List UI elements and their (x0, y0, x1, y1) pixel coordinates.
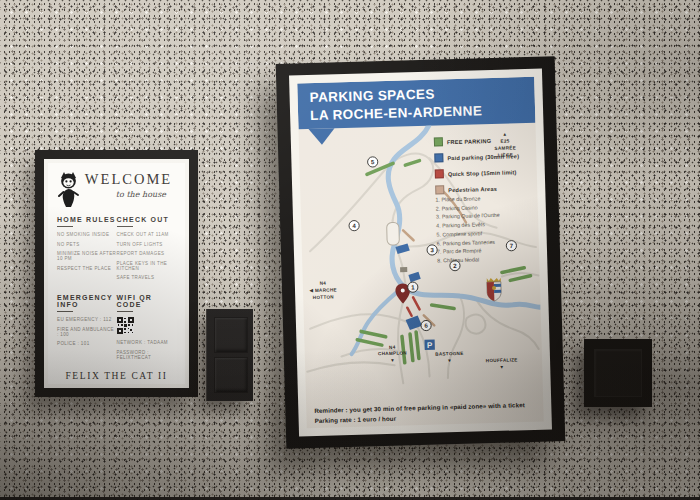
reminder-text: Reminder : you get 30 min of free parkin… (314, 400, 540, 425)
direction-label-marche-hotton: N4 ◀ MARCHE HOTTON (305, 281, 341, 303)
check-out-item: PLACE KEYS IN THE KITCHEN (117, 261, 177, 271)
p-symbol: P (427, 341, 433, 350)
info-columns: EMERGENCY INFO EU EMERGENCY : 112 FIRE A… (57, 294, 176, 364)
welcome-sign-paper: WELCOME to the house HOME RULES NO SMOKI… (48, 163, 185, 384)
check-out-item: SAFE TRAVELS (117, 275, 177, 280)
home-rule-item: NO SMOKING INSIDE (57, 232, 117, 237)
wifi-network: NETWORK : TADAAM (117, 340, 177, 345)
welcome-title: WELCOME (81, 171, 176, 188)
divider (57, 226, 73, 227)
home-rules-heading: HOME RULES (57, 216, 117, 223)
felix-the-cat-icon (57, 172, 81, 212)
wifi-heading: WIFI QR CODE (117, 294, 177, 308)
divider (117, 226, 133, 227)
poster-margin: PARKING SPACES LA ROCHE-EN-ARDENNE (289, 69, 552, 437)
check-out-item: TURN OFF LIGHTS (117, 242, 177, 247)
legend-swatch-green (434, 137, 443, 146)
check-out-item: CHECK OUT AT 11AM (117, 232, 177, 237)
banner-notch (309, 128, 335, 145)
locations-list: 1. Place du Bronze 2. Parking Casino 3. … (435, 193, 534, 266)
property-name: FELIX THE CAT II (57, 371, 176, 381)
switch-plate (594, 349, 642, 397)
bridge-shape (387, 222, 400, 245)
home-rules-section: HOME RULES NO SMOKING INSIDE NO PETS MIN… (57, 216, 117, 285)
legend-swatch-red (435, 169, 444, 178)
legend-item-quick-stop: Quick Stop (15min limit) (435, 167, 532, 179)
parking-p-box: P (424, 340, 434, 350)
emergency-item: EU EMERGENCY : 112 (57, 317, 117, 322)
welcome-header: WELCOME to the house (57, 171, 176, 207)
frame-mat: WELCOME to the house HOME RULES NO SMOKI… (44, 159, 189, 388)
quick-stop-segments (407, 297, 420, 316)
direction-label-champlon: N4 CHAMPLON ▼ (373, 344, 411, 366)
legend-label: FREE PARKING (447, 137, 491, 144)
divider (117, 311, 133, 312)
light-switch-right (584, 339, 652, 407)
home-rule-item: MINIMIZE NOISE AFTER 10 PM (57, 251, 117, 261)
home-rule-item: RESPECT THE PLACE (57, 266, 117, 271)
legend-swatch-blue (434, 153, 443, 162)
emergency-info-section: EMERGENCY INFO EU EMERGENCY : 112 FIRE A… (57, 294, 117, 364)
poster-print-area: PARKING SPACES LA ROCHE-EN-ARDENNE (297, 77, 544, 428)
building-block (400, 267, 407, 272)
check-out-heading: CHECK OUT (117, 216, 177, 223)
direction-label-houffalize: HOUFFALIZE ▼ (480, 357, 523, 372)
town-crest-icon (484, 276, 505, 307)
direction-label-bastogne: BASTOGNE ▼ (430, 350, 468, 365)
parking-map-frame: PARKING SPACES LA ROCHE-EN-ARDENNE (276, 56, 566, 449)
legend-swatch-tan (435, 185, 444, 194)
photo-of-wall: WELCOME to the house HOME RULES NO SMOKI… (0, 0, 700, 500)
legend-item-free-parking: FREE PARKING (434, 135, 531, 147)
wifi-qr-code-icon (117, 317, 177, 338)
wifi-section: WIFI QR CODE (117, 294, 177, 364)
check-out-item: REPORT DAMAGES (117, 251, 177, 256)
rocker-button-top (214, 317, 248, 353)
rocker-button-bottom (214, 357, 248, 393)
home-rule-item: NO PETS (57, 242, 117, 247)
light-switch-middle (206, 309, 253, 401)
wifi-password: PASSWORD : FELIXTHECAT (117, 350, 177, 360)
emergency-item: POLICE : 101 (57, 341, 117, 346)
map-legend: FREE PARKING Paid parking (30min free) Q… (434, 135, 533, 202)
legend-label: Paid parking (30min free) (447, 153, 519, 161)
rules-columns: HOME RULES NO SMOKING INSIDE NO PETS MIN… (57, 216, 176, 285)
poster-title-banner: PARKING SPACES LA ROCHE-EN-ARDENNE (297, 77, 535, 130)
legend-item-paid-parking: Paid parking (30min free) (434, 151, 531, 163)
emergency-item: FIRE AND AMBULANCE : 100 (57, 327, 117, 337)
divider (57, 311, 73, 312)
legend-label: Quick Stop (15min limit) (448, 169, 517, 177)
emergency-info-heading: EMERGENCY INFO (57, 294, 117, 308)
check-out-section: CHECK OUT CHECK OUT AT 11AM TURN OFF LIG… (117, 216, 177, 285)
welcome-sign-frame: WELCOME to the house HOME RULES NO SMOKI… (35, 150, 198, 397)
legend-label: Pedestrian Areas (448, 185, 497, 192)
